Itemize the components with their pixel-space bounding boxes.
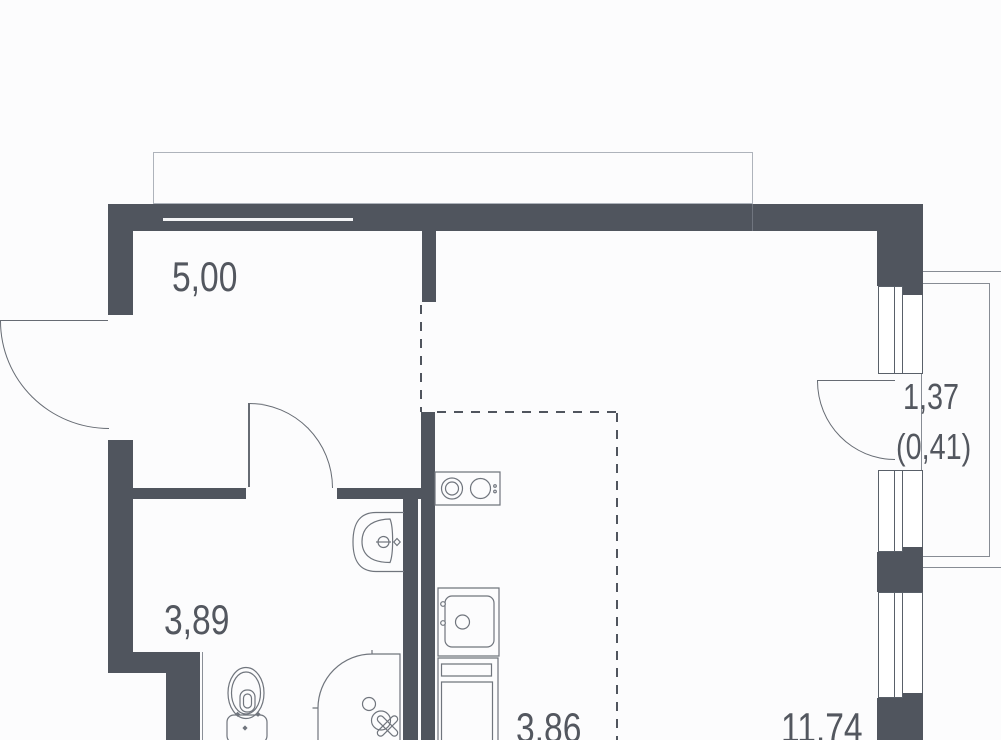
fixtures-layer [0, 0, 1001, 740]
window-pane-line [902, 593, 903, 697]
wall-left-upper [108, 204, 133, 315]
window-pane-line [902, 471, 903, 551]
window-pane-line [894, 287, 895, 373]
kitchen-sink-icon [438, 588, 499, 656]
wall-top-seam [163, 218, 353, 221]
cooktop-icon [435, 472, 500, 505]
toilet-icon [227, 668, 267, 740]
wall-bathroom-top-left [133, 488, 246, 499]
wall-right-bottom [877, 698, 923, 740]
balcony-inner-outline [921, 283, 990, 557]
zone-dashed-line-top [437, 411, 617, 413]
floor-plan: 5,00 3,89 3,86 11,74 1,37 (0,41) [0, 0, 1001, 740]
wall-step-horizontal [133, 652, 200, 673]
wall-corner-top-right-tab [903, 286, 923, 295]
window-pane-line [902, 287, 903, 373]
wall-bathroom-right [403, 488, 418, 740]
shower-icon [313, 650, 401, 740]
room-label-hallway: 5,00 [172, 256, 237, 298]
zone-dashed-line-right [616, 413, 618, 740]
balcony-door-swing-arc [817, 381, 895, 460]
exterior-contour-line [153, 152, 753, 204]
wall-right-bottom-tab [903, 693, 923, 698]
room-label-balcony-reduced: (0,41) [896, 429, 971, 465]
window-middle [878, 470, 923, 552]
window-top [878, 286, 923, 374]
wall-kitchen [421, 412, 435, 740]
wall-partition-stub [422, 231, 436, 302]
washbasin-icon [353, 513, 404, 572]
zone-dashed-line-left [420, 305, 422, 412]
wall-bathroom-top-right [337, 488, 421, 499]
window-pane-line [894, 593, 895, 697]
refrigerator-icon [438, 658, 498, 740]
bathroom-door-swing-arc [249, 403, 333, 488]
room-label-balcony: 1,37 [903, 379, 959, 415]
wall-right-middle [877, 552, 923, 592]
wall-step-vertical [166, 673, 200, 740]
room-label-kitchen: 3,86 [516, 707, 581, 740]
duct-edge-line [202, 652, 203, 740]
wall-right-middle-tab [903, 547, 923, 552]
wall-corner-top-right [877, 204, 923, 286]
window-bottom [878, 592, 923, 698]
room-label-bathroom: 3,89 [164, 599, 229, 641]
room-label-living: 11,74 [781, 707, 863, 740]
window-pane-line [894, 471, 895, 551]
wall-top-joint [752, 204, 753, 231]
entry-door-swing-arc [0, 321, 109, 429]
wall-left-lower [108, 440, 133, 673]
